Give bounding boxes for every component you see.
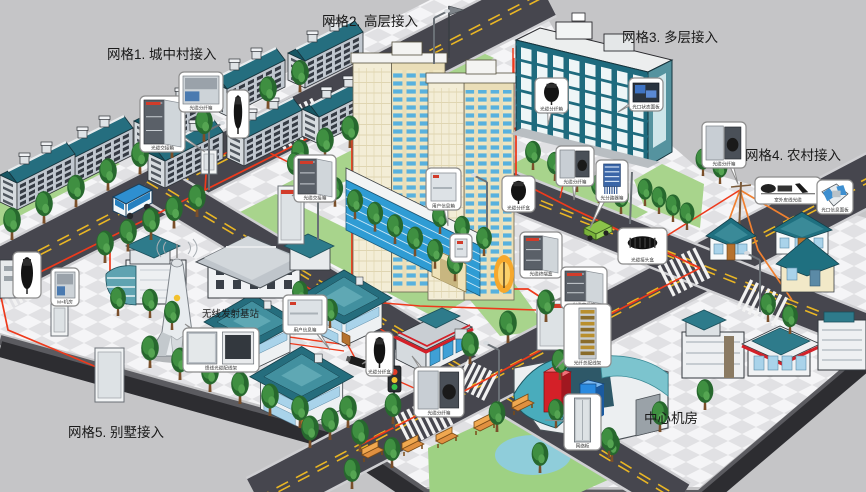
- svg-text:网格1. 城中村接入: 网格1. 城中村接入: [107, 46, 217, 62]
- svg-text:网格3. 多层接入: 网格3. 多层接入: [622, 29, 719, 45]
- svg-text:M×机房: M×机房: [57, 298, 73, 305]
- svg-text:室外皮线光缆: 室外皮线光缆: [774, 196, 802, 203]
- svg-text:光纤总配线架: 光纤总配线架: [574, 359, 602, 366]
- svg-text:网格5. 别墅接入: 网格5. 别墅接入: [68, 424, 165, 440]
- svg-text:用户信息箱: 用户信息箱: [432, 202, 455, 209]
- svg-text:光缆交接箱: 光缆交接箱: [151, 144, 174, 151]
- svg-text:光缆分纤箱: 光缆分纤箱: [713, 160, 736, 167]
- svg-text:光缆接头盒: 光缆接头盒: [631, 256, 654, 263]
- svg-text:无线发射基站: 无线发射基站: [202, 308, 260, 320]
- svg-text:馈线光缆配线架: 馈线光缆配线架: [205, 364, 238, 371]
- svg-text:光口信息面板: 光口信息面板: [821, 206, 849, 213]
- svg-text:光缆终端盒: 光缆终端盒: [530, 270, 553, 277]
- svg-text:光缆分纤箱: 光缆分纤箱: [564, 178, 587, 185]
- svg-text:中心机房: 中心机房: [644, 411, 698, 426]
- svg-text:光分路器箱: 光分路器箱: [601, 194, 624, 201]
- svg-text:网格2. 高层接入: 网格2. 高层接入: [322, 13, 419, 29]
- svg-text:光口状态面板: 光口状态面板: [632, 103, 660, 110]
- svg-text:光缆分纤箱: 光缆分纤箱: [540, 105, 563, 112]
- svg-text:用户信息箱: 用户信息箱: [294, 326, 317, 333]
- svg-text:光缆分纤箱: 光缆分纤箱: [428, 409, 451, 416]
- svg-text:光缆交接箱: 光缆交接箱: [304, 194, 327, 201]
- svg-text:光缆分纤盒: 光缆分纤盒: [507, 204, 530, 211]
- svg-text:网络柜: 网络柜: [576, 442, 590, 449]
- svg-text:光缆分纤箱: 光缆分纤箱: [190, 104, 213, 111]
- svg-text:网格4. 农村接入: 网格4. 农村接入: [745, 147, 842, 163]
- svg-text:光缆分纤盒: 光缆分纤盒: [368, 368, 391, 375]
